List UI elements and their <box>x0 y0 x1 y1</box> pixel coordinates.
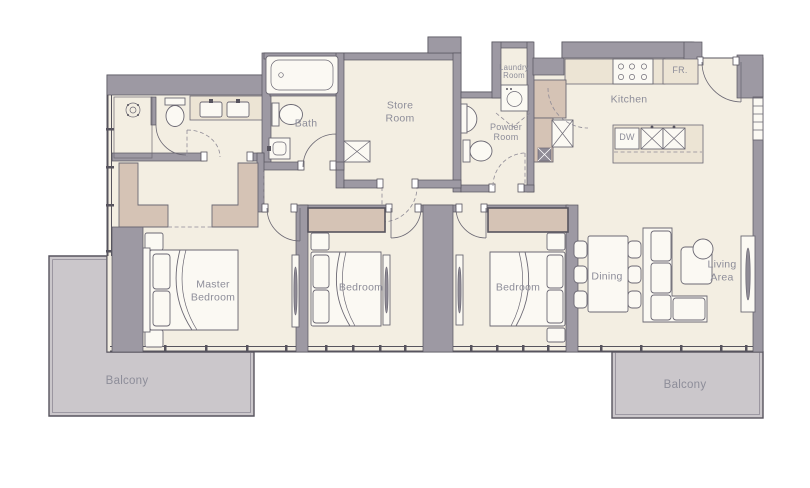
shaft-icon <box>538 148 551 161</box>
floor-plan-drawing <box>0 0 810 488</box>
tv-console-icon <box>741 236 755 312</box>
window-right <box>753 98 763 140</box>
kitchen-island-icon <box>613 125 703 163</box>
bathtub-icon <box>266 56 338 94</box>
stove-icon <box>613 59 653 84</box>
shaft-icon <box>344 141 370 162</box>
wardrobe-icon <box>308 208 385 232</box>
wardrobe-icon <box>488 208 568 232</box>
double-sink-icon <box>641 126 685 149</box>
dishwasher-icon <box>615 128 639 149</box>
washing-machine-icon <box>501 85 528 111</box>
toilet-icon <box>463 140 492 162</box>
balcony-right <box>612 352 763 418</box>
sink-icon <box>267 138 290 159</box>
floor-plan: Bath Store Room Laundry Room Powder Room… <box>0 0 810 488</box>
toilet-icon <box>165 98 185 127</box>
dining-table-icon <box>574 236 641 312</box>
master-bed-icon <box>143 233 238 347</box>
toilet-icon <box>272 103 303 126</box>
refrigerator-icon <box>663 59 698 84</box>
vanity-sink-icon <box>190 96 262 120</box>
wall-sink-icon <box>552 120 573 147</box>
